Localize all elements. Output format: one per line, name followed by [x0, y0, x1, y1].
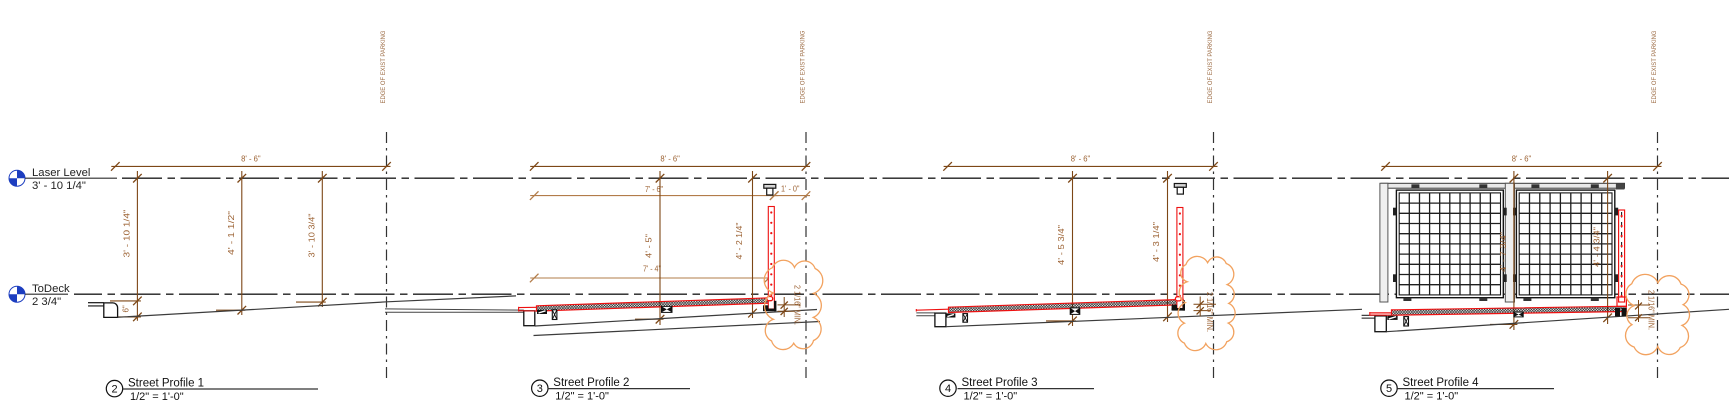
- svg-text:Laser Level: Laser Level: [32, 167, 90, 179]
- svg-text:EDGE OF EXIST PARKING: EDGE OF EXIST PARKING: [380, 31, 387, 104]
- svg-text:3: 3: [537, 383, 543, 395]
- svg-text:3' - 10 1/4": 3' - 10 1/4": [32, 180, 86, 192]
- svg-text:7' - 4": 7' - 4": [643, 265, 661, 274]
- svg-text:4' - 5 3/4": 4' - 5 3/4": [1057, 225, 1066, 265]
- svg-text:2: 2: [111, 384, 117, 396]
- svg-text:4' - 5": 4' - 5": [645, 234, 654, 258]
- svg-text:Street Profile 1: Street Profile 1: [128, 377, 204, 389]
- svg-text:4' - 2 1/4": 4' - 2 1/4": [735, 222, 744, 259]
- svg-text:1/2" = 1'-0": 1/2" = 1'-0": [555, 390, 609, 402]
- svg-text:4' - 4 3/4": 4' - 4 3/4": [1593, 227, 1602, 267]
- svg-text:1/2" = 1'-0": 1/2" = 1'-0": [1405, 390, 1459, 402]
- svg-text:Street Profile 3: Street Profile 3: [962, 377, 1038, 389]
- svg-text:Street Profile 4: Street Profile 4: [1403, 377, 1480, 389]
- svg-text:6": 6": [122, 305, 131, 312]
- svg-text:4' - 1 1/2": 4' - 1 1/2": [227, 211, 236, 255]
- svg-text:2 1/16" MIN.: 2 1/16" MIN.: [793, 285, 802, 325]
- svg-text:2 3/4": 2 3/4": [32, 296, 61, 308]
- svg-text:1' - 0": 1' - 0": [781, 185, 800, 194]
- svg-text:4' - 3 1/4": 4' - 3 1/4": [1152, 222, 1161, 262]
- svg-text:1/2" = 1'-0": 1/2" = 1'-0": [964, 390, 1018, 402]
- svg-text:ToDeck: ToDeck: [32, 283, 70, 295]
- svg-text:EDGE OF EXIST PARKING: EDGE OF EXIST PARKING: [800, 31, 807, 104]
- svg-text:8' - 6": 8' - 6": [1071, 154, 1091, 163]
- svg-text:EDGE OF EXIST PARKING: EDGE OF EXIST PARKING: [1651, 31, 1658, 104]
- svg-text:Street Profile 2: Street Profile 2: [553, 377, 629, 389]
- svg-text:1/2" = 1'-0": 1/2" = 1'-0": [130, 391, 184, 403]
- svg-text:8' - 6": 8' - 6": [660, 154, 680, 163]
- svg-text:8' - 6": 8' - 6": [241, 154, 261, 163]
- svg-text:3' - 10 1/4": 3' - 10 1/4": [123, 209, 132, 257]
- svg-text:4: 4: [945, 383, 951, 395]
- svg-text:2 1/16" MIN.: 2 1/16" MIN.: [1647, 290, 1656, 330]
- svg-text:4' - 7 3/4": 4' - 7 3/4": [1499, 232, 1508, 272]
- svg-text:8' - 6": 8' - 6": [1512, 154, 1532, 163]
- svg-text:2 1/16" MIN.: 2 1/16" MIN.: [1205, 292, 1214, 332]
- svg-text:3' - 10 3/4": 3' - 10 3/4": [308, 213, 317, 257]
- svg-text:5: 5: [1386, 383, 1392, 395]
- svg-text:EDGE OF EXIST PARKING: EDGE OF EXIST PARKING: [1207, 31, 1214, 104]
